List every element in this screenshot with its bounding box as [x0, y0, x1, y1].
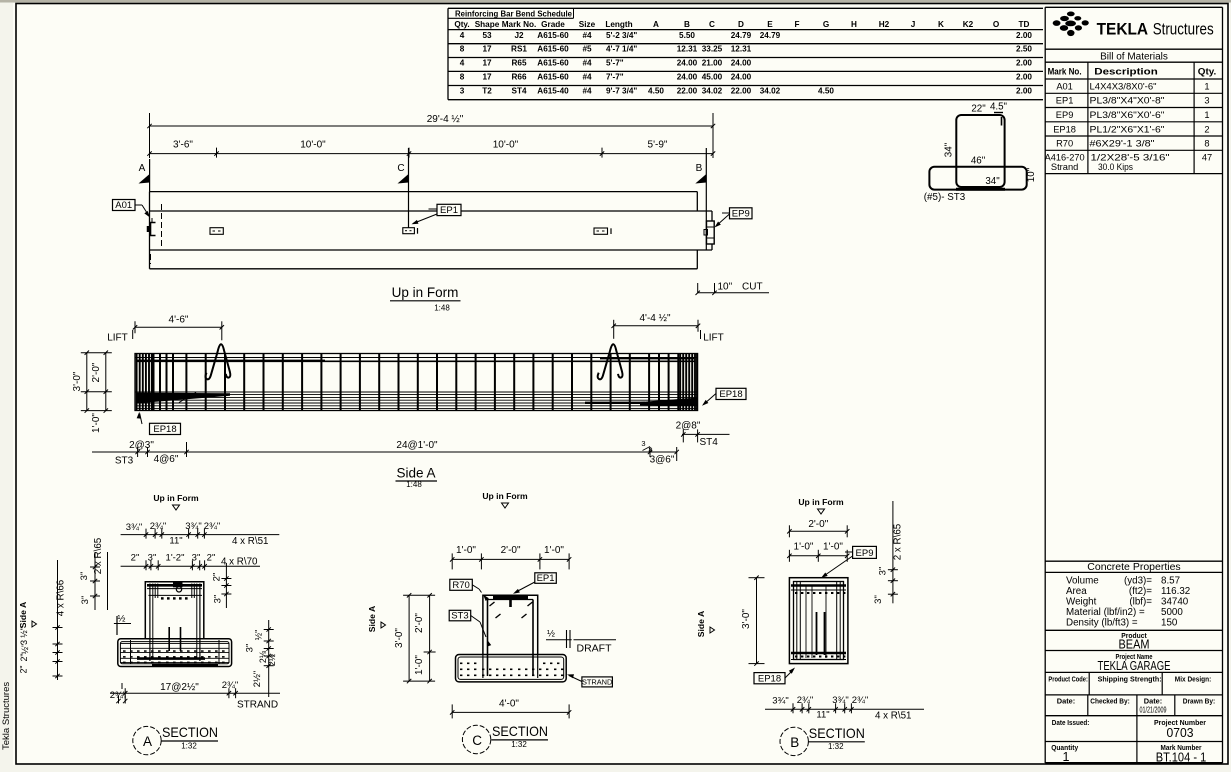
svg-text:#4: #4	[582, 31, 592, 40]
svg-text:4 x R\51: 4 x R\51	[875, 711, 912, 722]
svg-text:1: 1	[1204, 82, 1209, 92]
svg-text:L4X4X3/8X0'-6": L4X4X3/8X0'-6"	[1090, 82, 1157, 92]
svg-text:2": 2"	[19, 665, 29, 673]
svg-text:Structures: Structures	[1153, 21, 1214, 39]
svg-text:PL3/8"X6"X0'-6": PL3/8"X6"X0'-6"	[1090, 110, 1165, 120]
svg-text:2": 2"	[207, 553, 216, 564]
svg-text:TEKLA GARAGE: TEKLA GARAGE	[1098, 659, 1171, 673]
svg-text:Description: Description	[1094, 67, 1158, 78]
svg-text:T2: T2	[482, 87, 492, 96]
svg-text:5'-2 3/4": 5'-2 3/4"	[606, 31, 637, 40]
svg-text:3: 3	[641, 439, 645, 448]
svg-text:29'-4 ½": 29'-4 ½"	[427, 114, 464, 125]
svg-text:Up in Form: Up in Form	[392, 285, 459, 300]
svg-text:Up in Form: Up in Form	[153, 493, 199, 503]
svg-text:C: C	[472, 733, 482, 748]
svg-text:EP1: EP1	[537, 573, 555, 584]
svg-text:46": 46"	[971, 156, 986, 167]
svg-text:5'-7": 5'-7"	[606, 59, 624, 68]
svg-text:4: 4	[460, 31, 465, 40]
svg-text:Qty.: Qty.	[1198, 67, 1217, 78]
svg-text:R70: R70	[452, 580, 469, 591]
svg-text:3¾": 3¾"	[772, 696, 789, 707]
svg-text:3'-0": 3'-0"	[741, 609, 752, 629]
svg-text:R65: R65	[511, 59, 526, 68]
svg-text:1'-0": 1'-0"	[91, 413, 102, 433]
svg-text:34": 34"	[985, 176, 1000, 187]
svg-text:2": 2"	[131, 553, 140, 564]
svg-text:11": 11"	[169, 536, 182, 547]
svg-text:A615-40: A615-40	[537, 87, 569, 96]
svg-text:2½: 2½	[267, 653, 277, 666]
svg-text:17: 17	[482, 73, 492, 82]
svg-text:EP1: EP1	[440, 205, 458, 216]
svg-text:3": 3"	[80, 596, 91, 605]
svg-text:1'-0": 1'-0"	[794, 542, 814, 553]
svg-text:SECTION: SECTION	[492, 724, 548, 739]
svg-text:24.00: 24.00	[731, 59, 752, 68]
svg-text:EP9: EP9	[732, 208, 750, 219]
svg-text:8: 8	[460, 45, 465, 54]
svg-text:1'-2": 1'-2"	[166, 553, 185, 564]
svg-text:2@3": 2@3"	[129, 440, 154, 451]
svg-text:Bill of Materials: Bill of Materials	[1100, 52, 1168, 63]
svg-text:3¾": 3¾"	[126, 522, 143, 533]
svg-text:53: 53	[482, 31, 492, 40]
svg-text:24@1'-0": 24@1'-0"	[396, 440, 438, 451]
svg-text:2¾": 2¾"	[797, 695, 814, 706]
svg-text:(#5)- ST3: (#5)- ST3	[924, 192, 966, 203]
svg-text:4'-0": 4'-0"	[499, 699, 519, 710]
svg-text:C: C	[709, 20, 715, 29]
svg-text:2'-0": 2'-0"	[501, 545, 521, 556]
svg-text:3": 3"	[873, 595, 884, 604]
svg-text:ST3: ST3	[451, 610, 468, 621]
svg-text:PL3/8"X4"X0'-8": PL3/8"X4"X0'-8"	[1090, 96, 1165, 106]
svg-text:A615-60: A615-60	[537, 45, 569, 54]
svg-text:4: 4	[460, 59, 465, 68]
svg-text:½": ½"	[254, 630, 264, 640]
svg-text:22.00: 22.00	[731, 87, 752, 96]
svg-text:2.00: 2.00	[1016, 87, 1032, 96]
svg-text:TEKLA: TEKLA	[1097, 20, 1149, 39]
svg-text:0703: 0703	[1167, 726, 1194, 740]
svg-text:BEAM: BEAM	[1119, 638, 1150, 652]
svg-text:17: 17	[482, 45, 492, 54]
svg-text:PL1/2"X6"X1'-6": PL1/2"X6"X1'-6"	[1090, 124, 1165, 134]
svg-text:2.00: 2.00	[1016, 73, 1032, 82]
svg-text:ST4: ST4	[700, 437, 719, 448]
svg-text:4'-6": 4'-6"	[169, 315, 189, 326]
svg-text:24.79: 24.79	[760, 31, 781, 40]
svg-text:1'-0": 1'-0"	[456, 545, 476, 556]
svg-text:3¾": 3¾"	[832, 695, 849, 706]
svg-text:1'-0": 1'-0"	[544, 545, 564, 556]
svg-text:Mark No.: Mark No.	[502, 20, 537, 29]
svg-text:C: C	[397, 163, 404, 174]
svg-text:Side A: Side A	[367, 606, 377, 632]
svg-text:Up in Form: Up in Form	[482, 491, 528, 501]
svg-text:4'-4 ½": 4'-4 ½"	[639, 313, 670, 324]
svg-text:12.31: 12.31	[677, 45, 698, 54]
svg-text:Length: Length	[605, 20, 632, 29]
svg-text:LIFT: LIFT	[107, 333, 128, 344]
svg-text:1/2X28'-5 3/16": 1/2X28'-5 3/16"	[1091, 153, 1170, 163]
svg-text:3@6": 3@6"	[650, 455, 675, 466]
svg-text:1: 1	[1204, 110, 1209, 120]
svg-text:Checked By:: Checked By:	[1090, 697, 1130, 706]
svg-text:#4: #4	[582, 59, 592, 68]
svg-text:34.02: 34.02	[760, 87, 781, 96]
svg-text:A416-270: A416-270	[1045, 153, 1085, 163]
svg-text:E: E	[767, 20, 773, 29]
svg-text:3": 3"	[192, 553, 201, 564]
svg-text:A: A	[653, 20, 659, 29]
svg-text:A: A	[143, 734, 152, 749]
svg-text:3: 3	[460, 87, 465, 96]
svg-text:G: G	[823, 20, 829, 29]
svg-text:A01: A01	[1056, 82, 1073, 92]
svg-text:Product Code:: Product Code:	[1048, 675, 1088, 684]
svg-text:2¾": 2¾"	[150, 521, 167, 532]
svg-text:O: O	[993, 20, 1000, 29]
svg-text:Reinforcing Bar Bend Schedule: Reinforcing Bar Bend Schedule	[455, 8, 572, 18]
svg-text:2½": 2½"	[252, 671, 263, 688]
svg-text:2.50: 2.50	[1016, 45, 1032, 54]
svg-text:Tekla Structures: Tekla Structures	[1, 682, 12, 750]
svg-text:1:32: 1:32	[181, 741, 197, 750]
svg-text:F: F	[794, 20, 799, 29]
svg-text:4 x R\51: 4 x R\51	[232, 536, 269, 547]
svg-text:30.0 Kips: 30.0 Kips	[1098, 162, 1133, 172]
svg-text:R66: R66	[511, 73, 526, 82]
svg-text:3": 3"	[213, 595, 224, 604]
svg-text:EP18: EP18	[153, 424, 176, 435]
svg-text:3¾": 3¾"	[185, 521, 202, 532]
svg-text:A615-60: A615-60	[537, 31, 569, 40]
svg-text:2¾": 2¾"	[204, 521, 221, 532]
svg-text:Date Issued:: Date Issued:	[1052, 718, 1090, 727]
svg-text:3": 3"	[79, 572, 90, 581]
svg-text:EP9: EP9	[1056, 110, 1074, 120]
svg-text:J: J	[911, 20, 916, 29]
svg-text:150: 150	[1161, 618, 1178, 629]
svg-text:10'-0": 10'-0"	[300, 140, 326, 151]
svg-text:24.00: 24.00	[731, 73, 752, 82]
svg-text:2¾": 2¾"	[222, 680, 239, 691]
svg-text:1'-0": 1'-0"	[823, 542, 843, 553]
svg-text:Side A: Side A	[18, 602, 28, 628]
svg-text:1:48: 1:48	[406, 480, 422, 489]
svg-text:3": 3"	[878, 567, 889, 576]
svg-text:5.50: 5.50	[679, 31, 695, 40]
svg-text:34740: 34740	[1161, 597, 1189, 608]
svg-text:8: 8	[460, 73, 465, 82]
svg-text:1'-0": 1'-0"	[414, 655, 425, 675]
svg-text:Concrete Properties: Concrete Properties	[1087, 561, 1180, 573]
svg-text:ST3: ST3	[115, 456, 134, 467]
svg-text:8.57: 8.57	[1161, 576, 1180, 587]
svg-text:TD: TD	[1019, 20, 1030, 29]
svg-text:12.31: 12.31	[731, 45, 752, 54]
svg-text:EP9: EP9	[856, 548, 874, 559]
svg-text:45.00: 45.00	[702, 73, 723, 82]
svg-text:½": ½"	[20, 644, 30, 654]
svg-text:8: 8	[1204, 139, 1209, 149]
svg-text:A01: A01	[115, 200, 132, 211]
svg-text:1:48: 1:48	[434, 304, 450, 313]
svg-text:3": 3"	[245, 644, 256, 653]
svg-text:Date:: Date:	[1057, 697, 1076, 706]
svg-text:#5: #5	[582, 45, 592, 54]
svg-text:STRAND: STRAND	[582, 677, 612, 686]
svg-text:A: A	[139, 163, 146, 174]
svg-text:34": 34"	[944, 142, 955, 157]
svg-text:Area: Area	[1066, 586, 1087, 597]
svg-text:Material (lbf/in2) =: Material (lbf/in2) =	[1066, 607, 1145, 618]
svg-text:Shipping Strength:: Shipping Strength:	[1098, 675, 1162, 684]
svg-text:CUT: CUT	[742, 282, 763, 293]
svg-text:H2: H2	[879, 20, 890, 29]
svg-text:Shape: Shape	[475, 20, 500, 29]
svg-text:3'-6": 3'-6"	[173, 140, 193, 151]
svg-text:7'-7": 7'-7"	[606, 73, 624, 82]
svg-text:Side A: Side A	[396, 466, 435, 481]
svg-text:Size: Size	[579, 20, 596, 29]
svg-text:10": 10"	[1026, 167, 1037, 182]
svg-text:17: 17	[482, 59, 492, 68]
svg-text:K: K	[938, 20, 944, 29]
svg-text:2¾": 2¾"	[110, 690, 127, 701]
svg-text:24.00: 24.00	[677, 73, 698, 82]
svg-text:4'-7 1/4": 4'-7 1/4"	[606, 45, 637, 54]
svg-text:(ft2)=: (ft2)=	[1129, 586, 1152, 597]
svg-text:LIFT: LIFT	[703, 333, 724, 344]
svg-text:#6X29'-1 3/8": #6X29'-1 3/8"	[1090, 139, 1155, 149]
svg-text:Grade: Grade	[541, 20, 565, 29]
svg-text:J2: J2	[514, 31, 524, 40]
svg-text:EP1: EP1	[1056, 96, 1074, 106]
svg-text:34.02: 34.02	[702, 87, 723, 96]
svg-text:3": 3"	[148, 553, 157, 564]
svg-text:½: ½	[547, 629, 555, 640]
svg-text:33.25: 33.25	[702, 45, 723, 54]
svg-text:3 ½": 3 ½"	[19, 627, 29, 645]
svg-text:Weight: Weight	[1066, 597, 1097, 608]
svg-text:B: B	[696, 163, 703, 174]
svg-text:SECTION: SECTION	[162, 725, 218, 740]
svg-text:#4: #4	[582, 73, 592, 82]
svg-text:D: D	[738, 20, 744, 29]
svg-text:B: B	[790, 735, 799, 750]
svg-text:21.00: 21.00	[702, 59, 723, 68]
svg-text:(lbf)=: (lbf)=	[1129, 597, 1152, 608]
svg-text:Mix Design:: Mix Design:	[1175, 675, 1212, 684]
svg-text:A615-60: A615-60	[537, 59, 569, 68]
svg-text:10'-0": 10'-0"	[493, 140, 519, 151]
svg-text:47: 47	[1202, 153, 1212, 163]
svg-text:9'-7 3/4": 9'-7 3/4"	[606, 87, 637, 96]
svg-text:24.79: 24.79	[731, 31, 752, 40]
svg-text:4@6": 4@6"	[154, 454, 179, 465]
svg-text:2¾": 2¾"	[852, 695, 869, 706]
svg-text:3'-0": 3'-0"	[72, 371, 83, 391]
svg-text:A615-60: A615-60	[537, 73, 569, 82]
svg-text:2": 2"	[212, 573, 223, 582]
svg-text:(yd3)=: (yd3)=	[1124, 576, 1152, 587]
svg-text:Drawn By:: Drawn By:	[1183, 697, 1216, 706]
svg-text:11": 11"	[816, 710, 829, 721]
svg-text:2'-0": 2'-0"	[414, 613, 425, 633]
svg-text:2: 2	[1204, 124, 1209, 134]
svg-text:1:32: 1:32	[511, 740, 527, 749]
svg-text:01/21/2009: 01/21/2009	[1140, 706, 1167, 715]
svg-text:2.00: 2.00	[1016, 59, 1032, 68]
svg-text:EP18: EP18	[758, 673, 781, 684]
svg-text:#4: #4	[582, 87, 592, 96]
svg-text:2": 2"	[19, 653, 29, 661]
svg-text:24.00: 24.00	[677, 59, 698, 68]
svg-text:116.32: 116.32	[1161, 586, 1190, 597]
svg-text:Strand: Strand	[1051, 162, 1078, 172]
svg-text:½: ½	[118, 614, 126, 625]
svg-text:4 x R\66: 4 x R\66	[56, 579, 67, 616]
svg-text:EP18: EP18	[719, 389, 742, 400]
svg-text:2'-0": 2'-0"	[91, 362, 102, 382]
svg-text:4.50: 4.50	[818, 87, 834, 96]
svg-text:K2: K2	[963, 20, 974, 29]
svg-text:5'-9": 5'-9"	[648, 140, 668, 151]
svg-text:Volume: Volume	[1066, 576, 1099, 587]
svg-text:22.00: 22.00	[677, 87, 698, 96]
svg-text:3'-0": 3'-0"	[394, 628, 405, 648]
svg-text:3: 3	[1204, 96, 1209, 106]
svg-text:1: 1	[1063, 750, 1070, 764]
svg-text:STRAND: STRAND	[237, 700, 278, 711]
svg-text:10": 10"	[718, 282, 733, 293]
svg-text:Qty.: Qty.	[454, 20, 469, 29]
svg-text:22": 22"	[971, 104, 986, 115]
svg-text:2.00: 2.00	[1016, 31, 1032, 40]
svg-text:5000: 5000	[1161, 607, 1183, 618]
svg-text:2 x R\65: 2 x R\65	[893, 523, 904, 560]
svg-text:17@2½": 17@2½"	[160, 682, 199, 693]
svg-text:Mark No.: Mark No.	[1048, 67, 1082, 78]
svg-text:Side A: Side A	[696, 611, 706, 637]
svg-text:2@8": 2@8"	[676, 421, 701, 432]
svg-text:R70: R70	[1056, 139, 1073, 149]
svg-text:H: H	[851, 20, 857, 29]
svg-text:B: B	[684, 20, 690, 29]
svg-text:Density (lb/ft3) =: Density (lb/ft3) =	[1066, 618, 1138, 629]
svg-text:Up in Form: Up in Form	[798, 497, 844, 507]
svg-text:2'-0": 2'-0"	[808, 519, 828, 530]
svg-text:1:32: 1:32	[828, 742, 844, 751]
svg-text:SECTION: SECTION	[809, 726, 865, 741]
svg-text:4.50: 4.50	[648, 87, 664, 96]
svg-text:ST4: ST4	[511, 87, 526, 96]
svg-text:4.5": 4.5"	[990, 102, 1008, 113]
svg-text:Date:: Date:	[1144, 697, 1163, 706]
svg-text:EP18: EP18	[1053, 124, 1076, 134]
svg-text:DRAFT: DRAFT	[577, 643, 613, 655]
svg-text:RS1: RS1	[511, 45, 527, 54]
